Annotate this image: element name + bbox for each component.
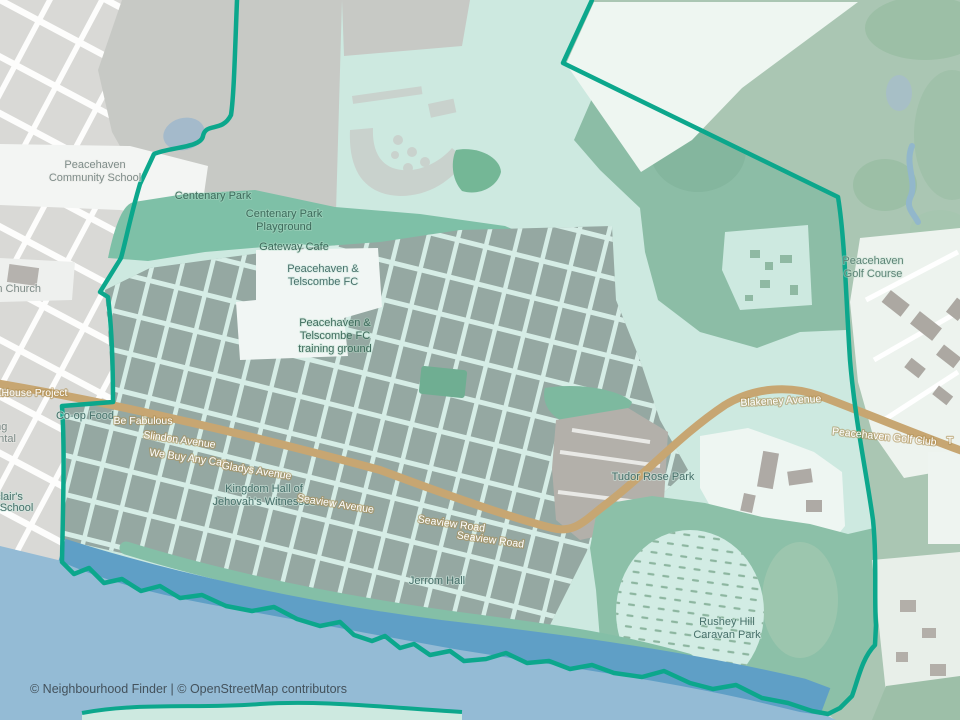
green-patch <box>419 366 468 399</box>
map-label-rushey-hill-caravan-park: Rushey HillCaravan Park <box>693 616 761 641</box>
pond <box>886 75 912 111</box>
map-label-the-house-project: The House Project <box>0 387 68 399</box>
map-label-jerrom-hall: Jerrom Hall <box>409 575 465 587</box>
map-label-be-fabulous: Be Fabulous <box>114 415 173 427</box>
map-label-sinclairs-school: aming School <box>0 502 33 514</box>
map-label-peacehaven-telscombe-fc: Peacehaven &Telscombe FC <box>287 263 359 288</box>
map-label-centenary-park: Centenary Park <box>175 190 252 202</box>
field-east <box>928 452 960 544</box>
map-label-dental-fragment-2: Dental <box>0 433 16 445</box>
map-label-gateway-cafe: Gateway Cafe <box>259 241 329 253</box>
map-label-dental-fragment-1: ing <box>0 421 7 433</box>
map-label-peacehaven-golf-course: PeacehavenGolf Course <box>842 255 903 280</box>
map-label-centenary-park-playground: Centenary ParkPlayground <box>246 208 323 233</box>
map-label-attribution: © Neighbourhood Finder | © OpenStreetMap… <box>30 682 347 696</box>
map-label-coop-food: Co-op Food <box>56 410 114 422</box>
map-canvas[interactable]: PeacehavenCommunity SchoolCentenary Park… <box>0 0 960 720</box>
map-label-label-fragment-t: T <box>947 435 954 447</box>
map-label-fc-training-ground: Peacehaven &Telscombe FCtraining ground <box>298 317 371 355</box>
hill-patch <box>762 542 838 658</box>
map-viewport: PeacehavenCommunity SchoolCentenary Park… <box>0 0 960 720</box>
map-label-tudor-rose-park: Tudor Rose Park <box>612 471 695 483</box>
map-label-ascension-church: scension Church <box>0 283 41 295</box>
